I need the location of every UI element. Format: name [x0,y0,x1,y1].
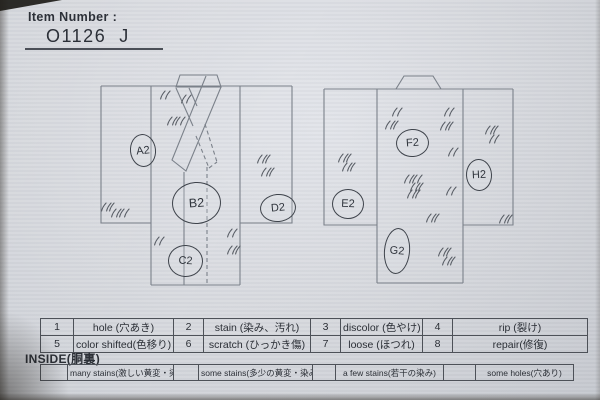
photo-edge-bottom-left [0,310,70,400]
defect-code-4: 4 [423,319,453,336]
inside-option-4: some holes(穴あり) [476,365,574,381]
defect-desc-2: stain (染み、汚れ) [204,319,311,336]
defect-marker-f2-label: F2 [406,137,420,150]
defect-marker-g2-label: G2 [389,244,405,257]
defect-code-8: 8 [423,336,453,353]
defect-marker-e2-label: E2 [341,198,355,210]
defect-code-3: 3 [311,319,341,336]
inside-check-cell-4 [444,365,476,381]
defect-desc-8: repair(修復) [453,336,588,353]
defect-marker-h2-label: H2 [472,169,487,182]
defect-marker-c2-label: C2 [178,255,193,268]
defect-marker-b2-label: B2 [188,195,204,210]
defect-desc-4: rip (裂け) [453,319,588,336]
photo-edge-bottom [0,393,600,400]
defect-desc-1: hole (穴あき) [74,319,174,336]
legend-row-1: 1 hole (穴あき) 2 stain (染み、汚れ) 3 discolor … [41,319,588,336]
defect-code-2: 2 [174,319,204,336]
inside-option-1: many stains(激しい黄変・染み) [68,365,174,381]
photo-edge-right [595,0,600,400]
inside-condition-table: many stains(激しい黄変・染み) some stains(多少の黄変・… [40,364,574,381]
inside-row: many stains(激しい黄変・染み) some stains(多少の黄変・… [41,365,574,381]
defect-desc-3: discolor (色やけ) [341,319,423,336]
inspection-sheet-photo: Item Number : O1126 J [0,0,600,400]
defect-code-7: 7 [311,336,341,353]
defect-legend-table: 1 hole (穴あき) 2 stain (染み、汚れ) 3 discolor … [40,318,588,353]
defect-marker-a2-label: A2 [136,144,151,157]
inside-option-2: some stains(多少の黄変・染み) [199,365,313,381]
inside-option-3: a few stains(若干の染み) [336,365,444,381]
defect-code-6: 6 [174,336,204,353]
defect-desc-7: loose (ほつれ) [341,336,423,353]
defect-marker-d2-label: D2 [270,201,285,214]
legend-row-2: 5 color shifted(色移り) 6 scratch (ひっかき傷) 7… [41,336,588,353]
defect-desc-6: scratch (ひっかき傷) [204,336,311,353]
inside-check-cell-3 [313,365,336,381]
stain-tally-marks [102,91,512,265]
inside-check-cell-2 [174,365,199,381]
